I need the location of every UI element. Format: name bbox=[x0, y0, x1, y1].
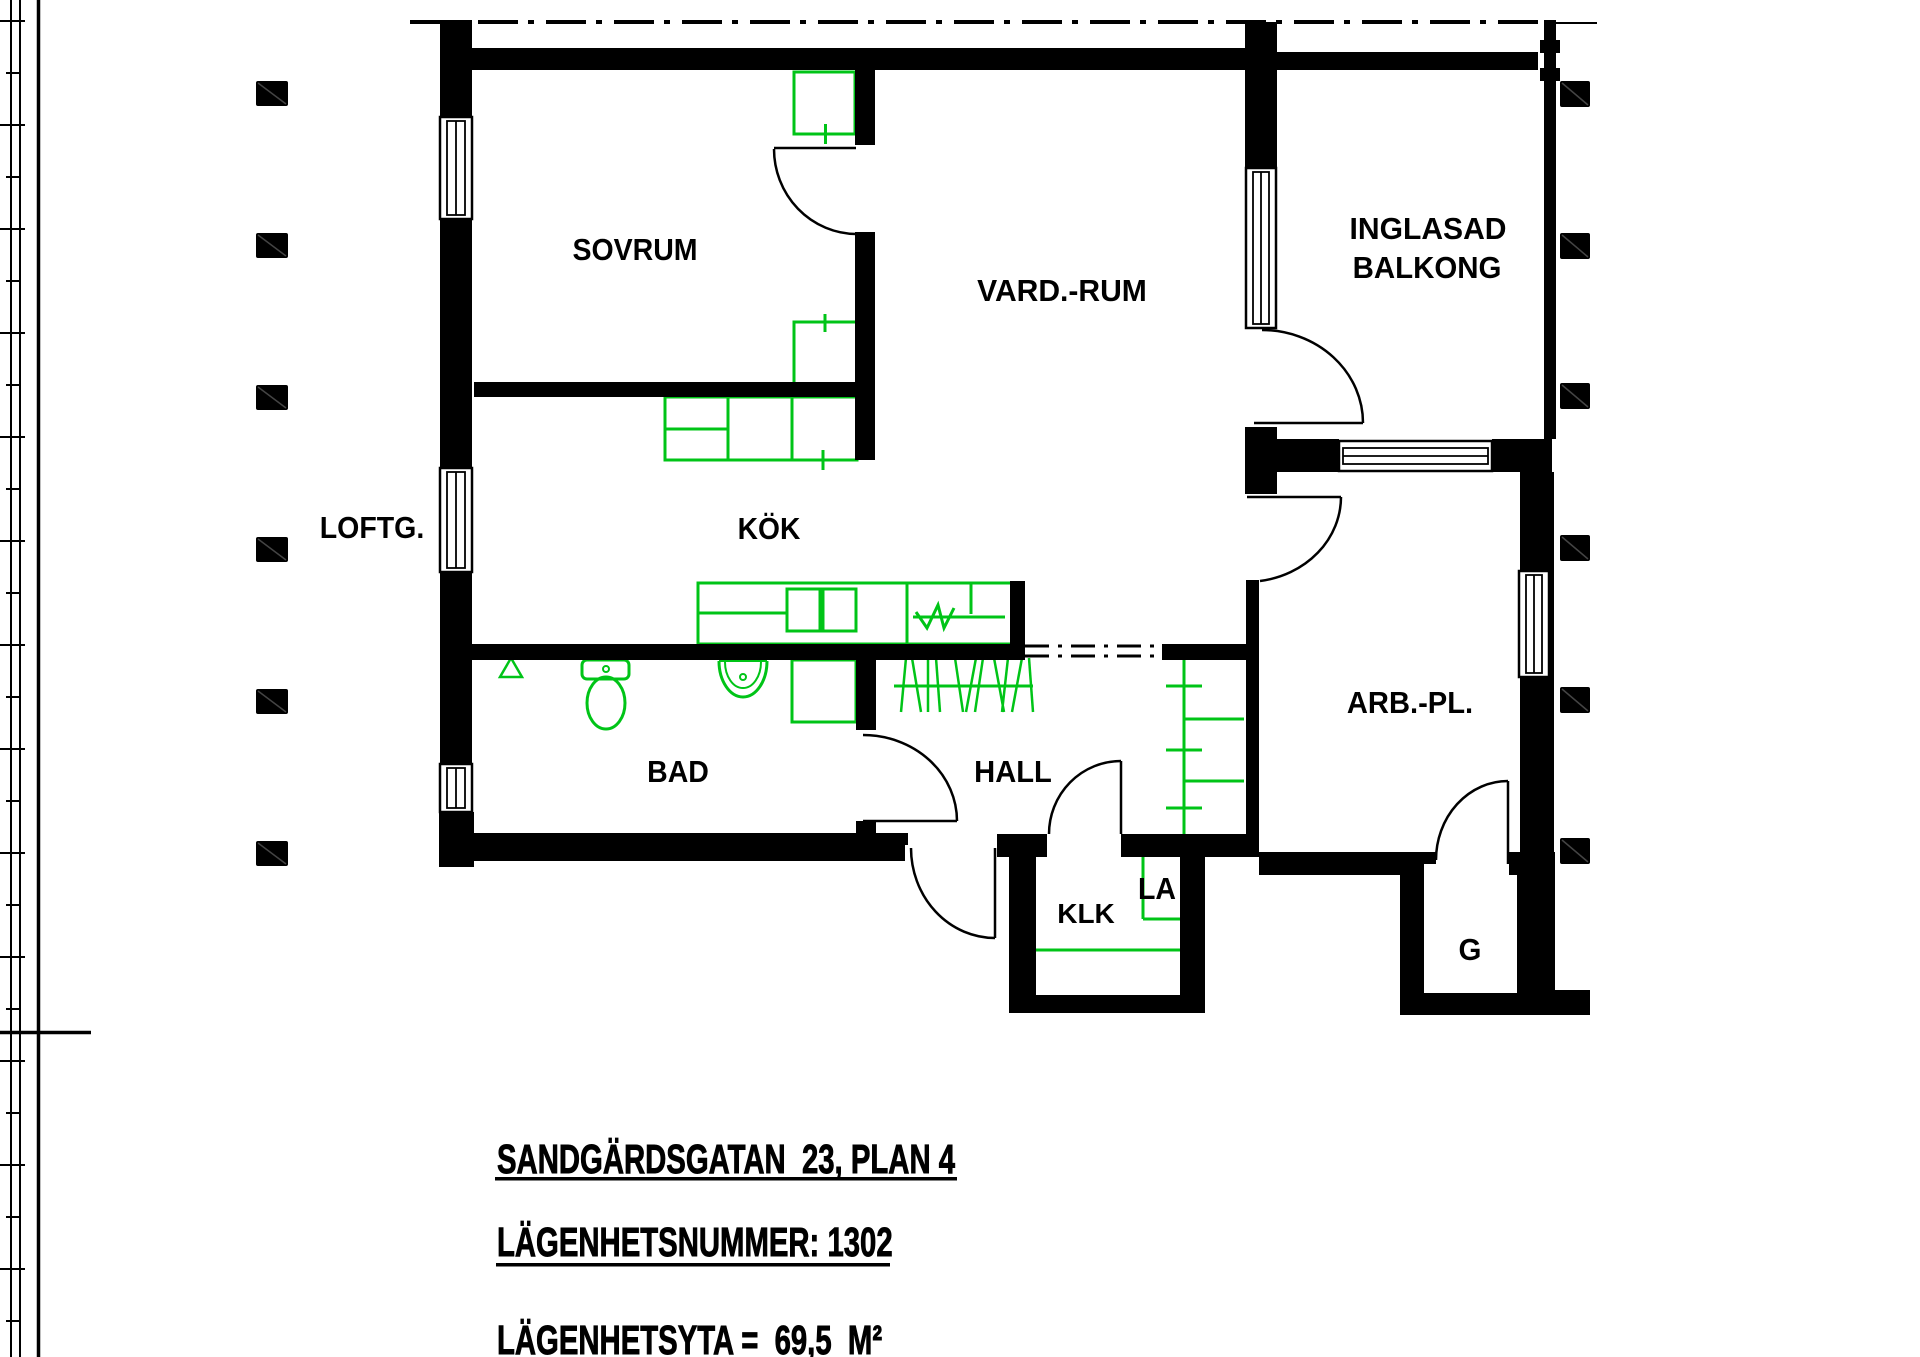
svg-text:KÖK: KÖK bbox=[738, 512, 801, 547]
svg-text:INGLASAD: INGLASAD bbox=[1350, 212, 1507, 247]
svg-text:ARB.-PL.: ARB.-PL. bbox=[1347, 686, 1473, 720]
svg-text:BALKONG: BALKONG bbox=[1353, 251, 1502, 285]
svg-text:KLK: KLK bbox=[1057, 898, 1115, 929]
svg-text:HALL: HALL bbox=[974, 755, 1052, 789]
svg-text:LOFTG.: LOFTG. bbox=[320, 511, 424, 545]
svg-text:LA: LA bbox=[1138, 872, 1176, 906]
svg-text:G: G bbox=[1459, 933, 1482, 967]
svg-text:LÄGENHETSYTA = 69,5 M²: LÄGENHETSYTA = 69,5 M² bbox=[497, 1317, 882, 1357]
svg-text:SANDGÄRDSGATAN 23, PLAN 4: SANDGÄRDSGATAN 23, PLAN 4 bbox=[497, 1136, 955, 1182]
svg-text:SOVRUM: SOVRUM bbox=[572, 233, 697, 267]
svg-text:VARD.-RUM: VARD.-RUM bbox=[977, 274, 1147, 309]
svg-text:LÄGENHETSNUMMER: 1302: LÄGENHETSNUMMER: 1302 bbox=[497, 1219, 893, 1265]
svg-text:BAD: BAD bbox=[647, 755, 709, 789]
